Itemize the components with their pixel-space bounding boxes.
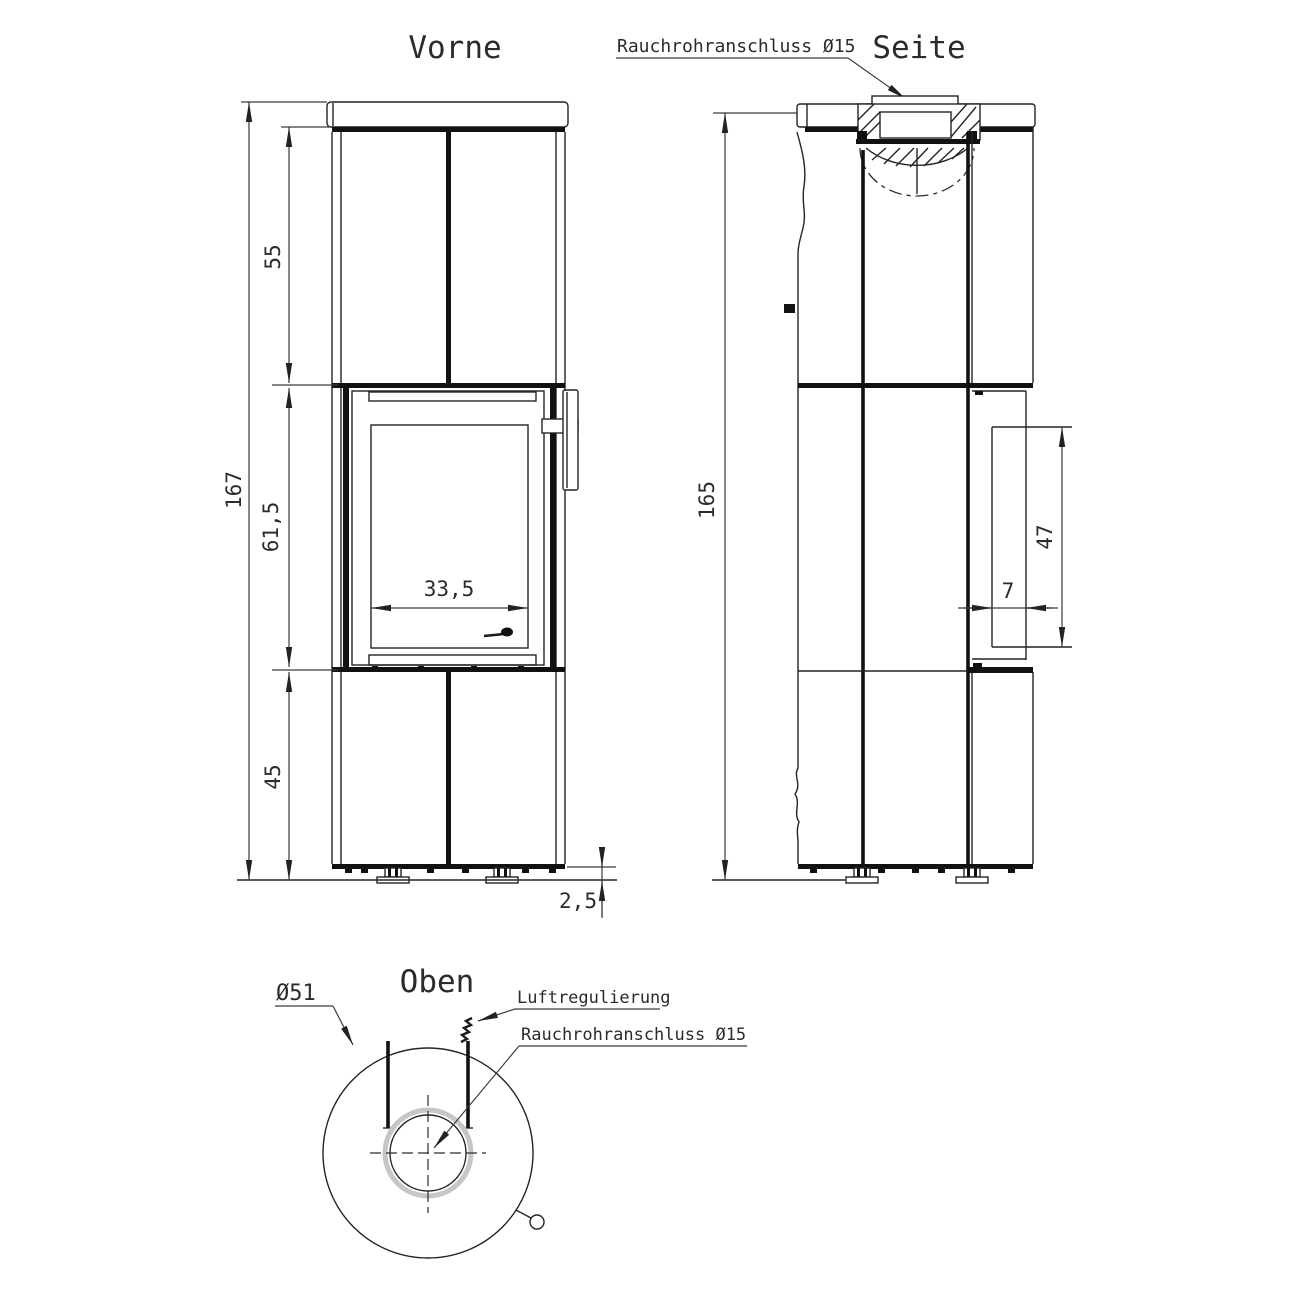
top-diameter-label: Ø51 xyxy=(276,981,316,1006)
side-door-profile xyxy=(972,391,1072,667)
front-dimensions: 167 55 61,5 45 33,5 2,5 xyxy=(222,102,616,918)
side-damper-mark xyxy=(784,304,795,313)
dim-side-height: 165 xyxy=(695,481,719,519)
dim-foot-height: 2,5 xyxy=(559,889,597,913)
door-latch-icon xyxy=(484,628,513,637)
side-view-title: Seite xyxy=(872,30,965,66)
dim-door-depth: 7 xyxy=(1002,579,1015,603)
front-door-glass xyxy=(371,425,528,648)
front-panel-divider xyxy=(446,132,451,383)
front-foot-left xyxy=(377,868,409,883)
front-fire-door xyxy=(343,388,556,670)
air-regulation-coil xyxy=(461,1018,472,1042)
dim-total-height: 167 xyxy=(222,471,246,509)
dim-glass-width: 33,5 xyxy=(424,577,475,601)
side-flue-label: Rauchrohranschluss Ø15 xyxy=(617,36,855,57)
top-door-knob xyxy=(516,1210,544,1229)
side-foot-left xyxy=(846,868,878,883)
dim-lower-section: 45 xyxy=(261,764,285,789)
side-dimensions: 165 47 7 xyxy=(695,113,1062,880)
top-air-label: Luftregulierung xyxy=(517,988,671,1008)
front-view: Vorne xyxy=(222,30,617,918)
front-top-plate xyxy=(327,102,568,127)
top-flue-label: Rauchrohranschluss Ø15 xyxy=(521,1025,746,1045)
side-view: Seite Rauchrohranschluss Ø15 xyxy=(616,30,1072,883)
dim-upper-section: 55 xyxy=(261,244,285,269)
technical-drawing-page: Vorne xyxy=(0,0,1300,1300)
stove-technical-drawing: Vorne xyxy=(0,0,1300,1300)
top-view: Oben Ø51 Luftregulierung Rauchrohranschl… xyxy=(275,964,747,1258)
side-left-edge xyxy=(795,132,805,864)
top-view-title: Oben xyxy=(400,964,475,1000)
side-foot-right xyxy=(956,868,988,883)
dim-door-section: 61,5 xyxy=(259,502,283,553)
front-foot-right xyxy=(486,868,518,883)
dim-handle-length: 47 xyxy=(1033,524,1057,549)
flue-collar-detail xyxy=(856,96,980,196)
front-door-handle xyxy=(542,390,578,490)
front-view-title: Vorne xyxy=(408,30,501,66)
